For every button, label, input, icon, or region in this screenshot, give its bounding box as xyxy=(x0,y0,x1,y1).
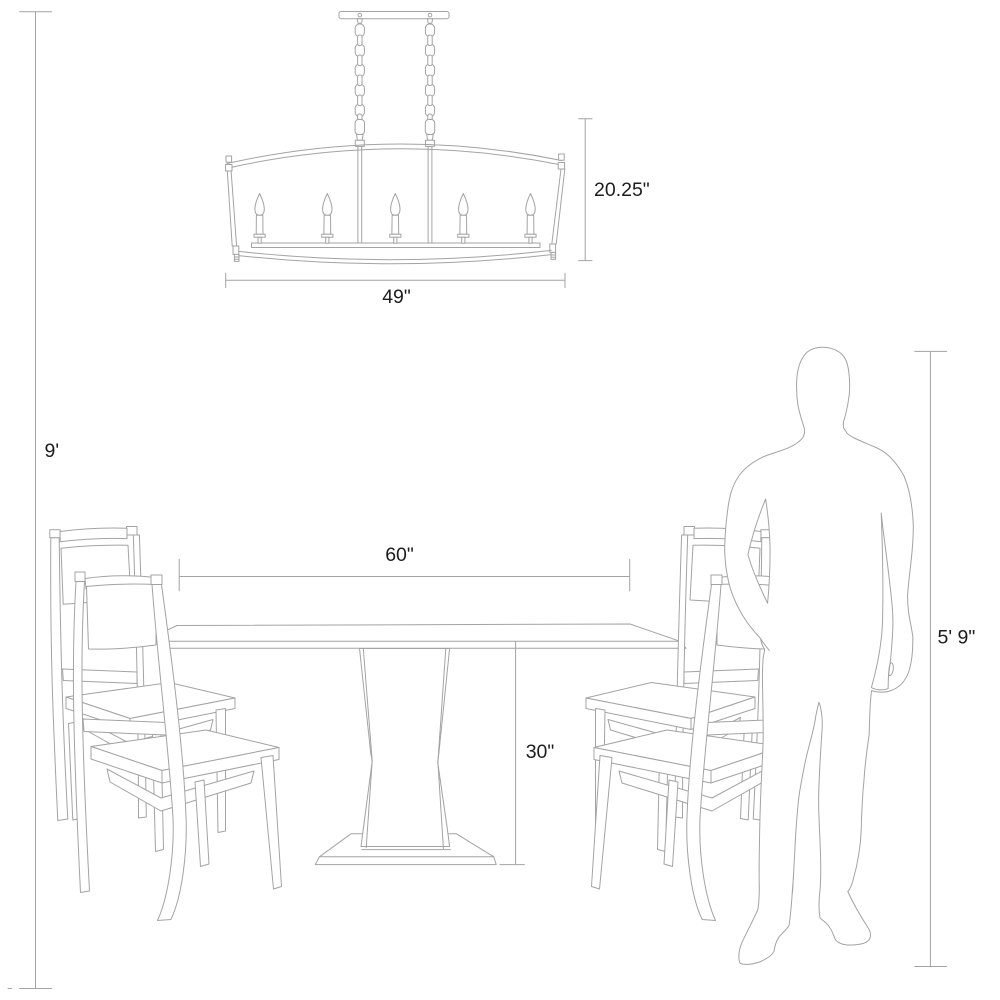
svg-text:20.25": 20.25" xyxy=(594,179,650,201)
svg-text:49": 49" xyxy=(382,286,411,308)
svg-text:5' 9": 5' 9" xyxy=(938,627,976,649)
svg-text:9': 9' xyxy=(45,440,60,462)
svg-text:60": 60" xyxy=(385,544,414,566)
svg-text:30": 30" xyxy=(526,741,555,763)
